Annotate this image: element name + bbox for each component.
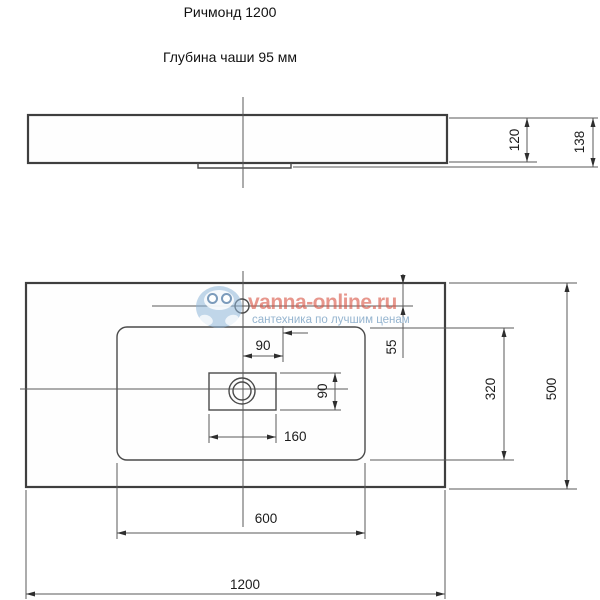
page-subtitle: Глубина чаши 95 мм <box>130 49 330 65</box>
dim-basin-height: 120 <box>507 118 530 162</box>
dim-total-width-label: 1200 <box>230 577 260 592</box>
dim-drain-height-label: 90 <box>315 383 330 398</box>
dim-bowl-depth-label: 320 <box>483 378 498 401</box>
technical-drawing-page: Ричмонд 1200 Глубина чаши 95 мм 120 138 <box>0 0 600 600</box>
dim-total-height: 138 <box>572 118 596 167</box>
dim-total-width: 1200 <box>26 490 445 599</box>
page-title: Ричмонд 1200 <box>140 4 320 20</box>
dim-total-depth: 500 <box>449 283 577 489</box>
drawing-canvas: 120 138 <box>0 0 600 600</box>
side-view-body <box>28 115 447 163</box>
dim-edge-to-hole-label: 55 <box>384 339 399 354</box>
dim-bowl-width-label: 600 <box>255 511 278 526</box>
top-view: 90 55 90 <box>20 271 577 599</box>
dim-total-depth-label: 500 <box>544 378 559 401</box>
dim-drain-width-label: 160 <box>284 429 307 444</box>
dim-hole-offset-label: 90 <box>255 338 270 353</box>
side-view: 120 138 <box>28 97 598 188</box>
dim-basin-height-label: 120 <box>507 129 522 152</box>
dim-total-height-label: 138 <box>572 131 587 154</box>
